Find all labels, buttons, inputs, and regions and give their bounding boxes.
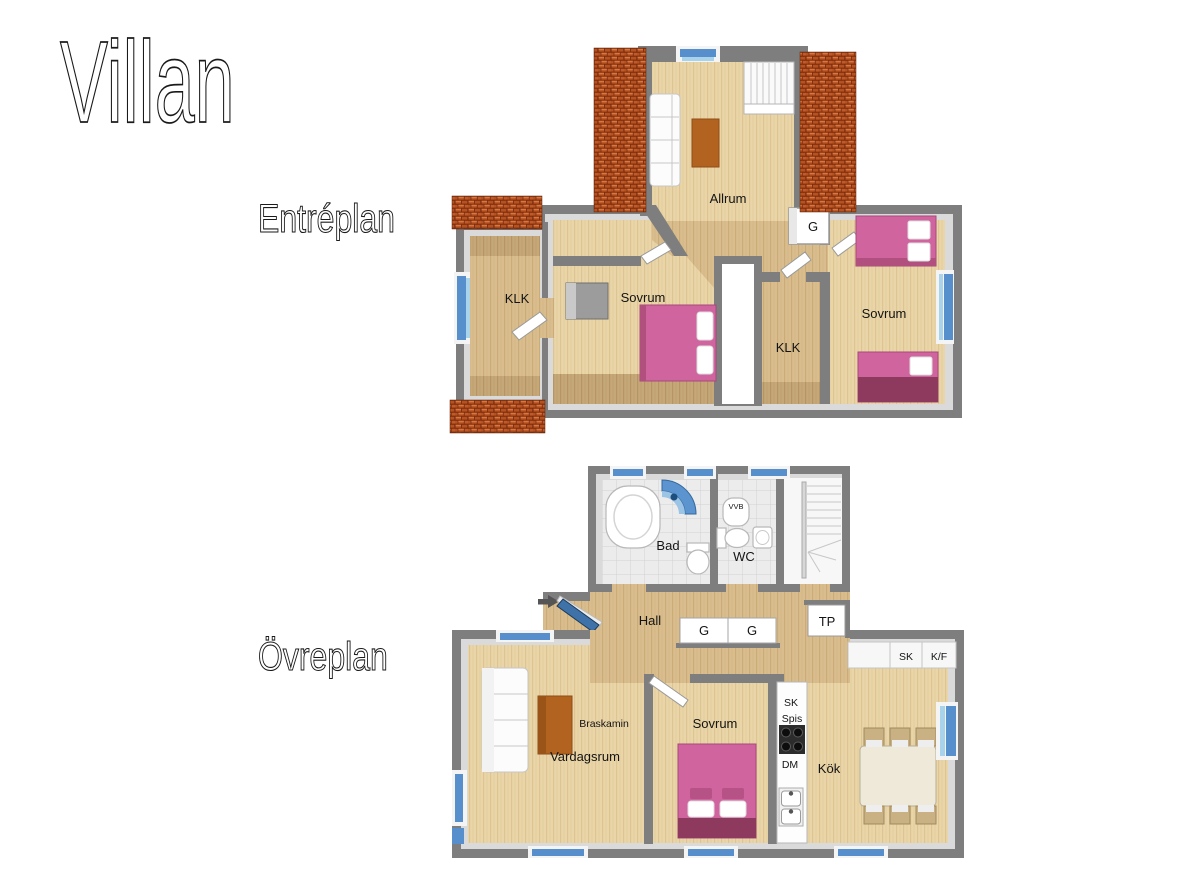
cabinet-label-sk-top: SK bbox=[899, 651, 913, 663]
fireplace bbox=[538, 696, 572, 754]
floorplan-top: Allrum KLK Sovrum KLK Sovrum G bbox=[450, 40, 975, 440]
sink bbox=[753, 527, 772, 548]
room-label-hall: Hall bbox=[639, 613, 662, 628]
single-bed bbox=[858, 352, 938, 402]
window bbox=[676, 46, 720, 62]
klk-mid-band bbox=[762, 382, 820, 404]
bathtub bbox=[606, 486, 660, 548]
toilet bbox=[687, 543, 709, 574]
floorplan-page: Villan Entréplan Övreplan bbox=[0, 0, 1181, 886]
window bbox=[936, 702, 958, 760]
page-title: Villan bbox=[58, 34, 398, 134]
plan2-label-text: Övreplan bbox=[258, 634, 388, 679]
label-dm: DM bbox=[782, 759, 798, 771]
window bbox=[496, 630, 554, 642]
double-bed bbox=[640, 305, 716, 381]
window bbox=[936, 270, 954, 344]
toilet bbox=[717, 528, 749, 548]
room-label-klk-mid: KLK bbox=[776, 340, 801, 355]
label-braskamin: Braskamin bbox=[579, 718, 629, 730]
sofa bbox=[482, 668, 528, 772]
label-spis: Spis bbox=[782, 713, 802, 725]
room-label-sovrum: Sovrum bbox=[693, 716, 738, 731]
room-label-allrum: Allrum bbox=[710, 191, 747, 206]
chimney-block bbox=[566, 283, 608, 319]
cabinet-label-sk-col: SK bbox=[784, 697, 798, 709]
closet-label-g: G bbox=[808, 219, 818, 234]
page-title-text: Villan bbox=[60, 19, 235, 148]
plan1-label: Entréplan bbox=[256, 192, 476, 244]
closet-label-tp: TP bbox=[819, 614, 836, 629]
sink bbox=[779, 788, 803, 826]
closet-label-g2: G bbox=[747, 623, 757, 638]
room-label-kok: Kök bbox=[818, 761, 841, 776]
dining-set bbox=[860, 728, 936, 824]
sofa bbox=[650, 94, 680, 186]
plan1-label-text: Entréplan bbox=[258, 196, 395, 241]
window bbox=[610, 466, 790, 479]
window bbox=[528, 846, 888, 858]
closet-gg bbox=[676, 618, 780, 648]
single-bed bbox=[856, 216, 936, 266]
room-label-vardagsrum: Vardagsrum bbox=[550, 749, 620, 764]
room-label-wc: WC bbox=[733, 549, 755, 564]
plan2-label: Övreplan bbox=[256, 630, 476, 682]
room-label-sovrum-mid: Sovrum bbox=[621, 290, 666, 305]
staircase bbox=[744, 62, 794, 114]
double-bed bbox=[678, 744, 756, 838]
coffee-table bbox=[692, 119, 719, 167]
floorplan-bottom: Bad VVB WC Hall G G TP SK K/F Braskamin … bbox=[450, 458, 990, 866]
fixture-label-vvb: VVB bbox=[728, 502, 743, 511]
window bbox=[454, 272, 470, 344]
cabinet-label-kf: K/F bbox=[931, 651, 947, 663]
room-label-klk-left: KLK bbox=[505, 291, 530, 306]
room-label-bad: Bad bbox=[656, 538, 679, 553]
room-label-sovrum-right: Sovrum bbox=[862, 306, 907, 321]
closet-label-g1: G bbox=[699, 623, 709, 638]
